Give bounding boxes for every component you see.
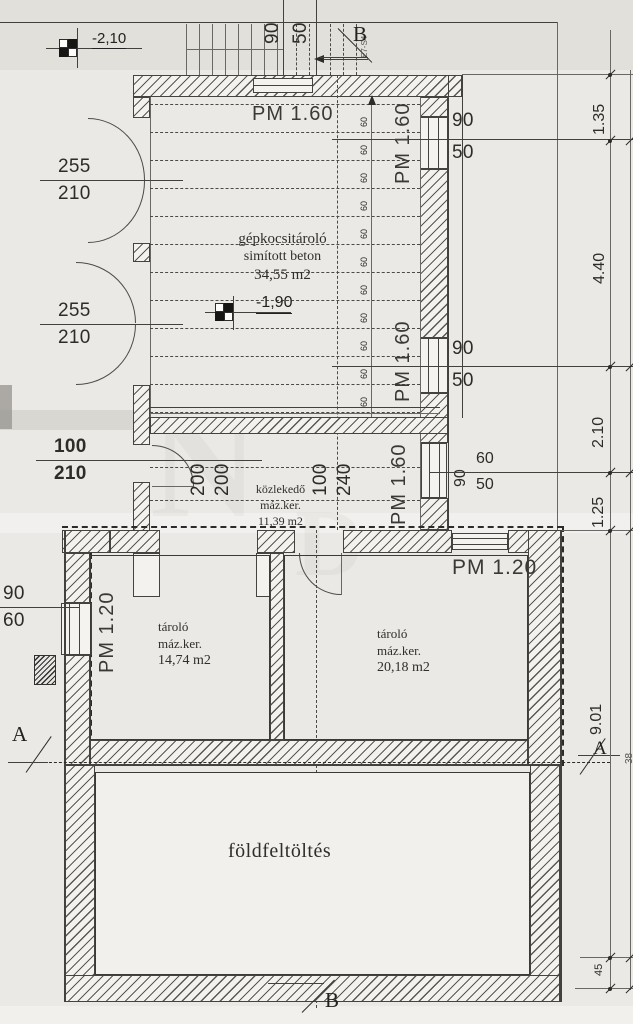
basement-outline-dashed [62, 526, 563, 528]
level-marker-cell [215, 303, 224, 312]
room-right-name: tároló [377, 625, 467, 642]
garage-pm-label: PM 1.60 [252, 103, 333, 126]
level-value-upper: -2,10 [92, 30, 126, 49]
ramp-contour [150, 160, 420, 161]
chimney-block [34, 655, 56, 685]
ramp-step-label: 60 [359, 109, 369, 127]
room-right-label: tároló máz.ker. 20,18 m2 [377, 625, 467, 676]
level-marker-cell [224, 312, 233, 321]
garage-inner-face-right [420, 97, 421, 530]
ramp-step-label: 60 [359, 389, 369, 407]
dim-ext-line [575, 988, 633, 989]
stair-width-dim: 50 [290, 0, 312, 44]
dim-dot [608, 987, 612, 991]
door2-height: 210 [58, 327, 91, 349]
ramp-step-label: 60 [359, 305, 369, 323]
garage-room-name: gépkocsitároló [210, 230, 355, 248]
dim-value-4-40: 4.40 [591, 226, 609, 284]
basement-pm-right: PM 1.20 [452, 556, 537, 580]
level-value-garage: -1,90 [256, 294, 292, 314]
fill-right-wall [530, 765, 560, 1002]
corridor-name: közlekedő [233, 481, 328, 497]
stair-tread-dashed [343, 24, 344, 75]
ramp-step-label: 60 [359, 333, 369, 351]
garage-right-wall [420, 97, 448, 117]
window3-height-a: 60 [476, 450, 494, 468]
ramp-contour [150, 132, 420, 133]
scan-shade-bottom [0, 1006, 633, 1024]
basement-left-wall [65, 655, 90, 765]
scan-shade-band [0, 410, 140, 430]
marker-cross-v [77, 28, 78, 68]
basement-top-wall [62, 530, 110, 553]
basement-window-width: 90 [3, 583, 25, 605]
window3-height-b: 50 [476, 476, 494, 494]
door-leaf-arc [88, 118, 145, 180]
ramp-contour [150, 356, 420, 357]
garage-window-1 [420, 117, 448, 169]
dim-value-45: 45 [593, 948, 605, 976]
outer-wall-line [560, 530, 562, 1002]
room-left-label: tároló máz.ker. 14,74 m2 [158, 618, 238, 669]
ramp-step-label: 60 [359, 361, 369, 379]
window2-height: 50 [452, 370, 474, 392]
door1-dim-line [40, 180, 183, 181]
dim-dot [608, 365, 612, 369]
section-b-top-line [320, 57, 368, 58]
section-a-left-diagonal [26, 736, 52, 773]
fill-top-line [65, 765, 560, 766]
section-b-bottom-label: B [325, 988, 339, 1013]
projection-line [557, 22, 558, 532]
dim-value-38-cut: 38 [624, 740, 633, 764]
garage-room-label: gépkocsitároló simított beton 34,55 m2 [210, 230, 355, 284]
garage-left-wall [133, 97, 150, 118]
ramp-dim-line [371, 100, 372, 418]
door1-width: 255 [58, 156, 91, 178]
door3-width: 100 [54, 436, 87, 458]
basement-top-wall [257, 530, 295, 553]
basement-outline-dashed [562, 526, 564, 766]
section-line-top [316, 0, 317, 75]
garage-left-wall [133, 385, 150, 445]
floorplan-scan: N D -2,10 90 50 E7-S4 B [0, 0, 633, 1024]
scan-shade-left [0, 385, 12, 429]
corridor-opening1-height: 200 [212, 434, 234, 496]
stair-tread-dashed [330, 24, 331, 75]
corridor-pm-label: PM 1.60 [388, 427, 411, 525]
door1-height: 210 [58, 183, 91, 205]
level-marker-cell [59, 48, 68, 57]
door-leaf-arc [88, 181, 145, 243]
dim-dot [608, 956, 612, 960]
dim-dot [608, 73, 612, 77]
garage-step-line [150, 413, 440, 414]
window2-dim-line [332, 366, 633, 367]
basement-middle-wall [270, 553, 284, 740]
dim-dot [608, 139, 612, 143]
dim-ext-line [562, 530, 633, 531]
level-marker-cell [224, 303, 233, 312]
garage-room-area: 34,55 m2 [210, 266, 355, 284]
ramp-step-label: 60 [359, 193, 369, 211]
section-a-left-tick [8, 762, 48, 763]
ramp-contour [150, 328, 420, 329]
basement-pm-left: PM 1.20 [96, 578, 119, 673]
ramp-contour [150, 216, 420, 217]
corridor-opening2-height: 240 [334, 434, 356, 496]
level-marker-cell [68, 39, 77, 48]
basement-top-wall [110, 530, 160, 553]
basement-left-wall [65, 553, 90, 603]
garage-room-finish: simított beton [210, 248, 355, 266]
room-right-area: 20,18 m2 [377, 659, 467, 676]
ramp-contour [150, 188, 420, 189]
dim-dot [608, 529, 612, 533]
dim-value-9-01: 9.01 [588, 675, 606, 735]
ramp-step-label: 60 [359, 165, 369, 183]
stair-landing-line [186, 49, 283, 50]
section-a-left-label: A [12, 722, 27, 747]
window1-width: 90 [452, 110, 474, 132]
stair-width-dim: 90 [262, 0, 284, 44]
room-right-finish: máz.ker. [377, 642, 467, 659]
door2-dim-line [40, 324, 183, 325]
corridor-finish: máz.ker. [233, 497, 328, 513]
window3-width: 90 [452, 445, 470, 487]
stair-arrow-line [322, 59, 368, 60]
ramp-step-label: 60 [359, 277, 369, 295]
ramp-contour [150, 384, 420, 385]
garage-left-wall [133, 243, 150, 262]
basement-window-dim-line [0, 607, 80, 608]
room-left-area: 14,74 m2 [158, 652, 238, 669]
section-b-top-label: B [353, 22, 367, 47]
dim-ext-line [580, 957, 633, 958]
garage-pm-right-lower: PM 1.60 [392, 318, 415, 402]
corridor-room-label: közlekedő máz.ker. 11,39 m2 [233, 481, 328, 529]
dim-value-1-25: 1.25 [590, 474, 608, 528]
section-a-right-label: A [593, 738, 607, 760]
basement-window-height: 60 [3, 610, 25, 632]
garage-pm-right-upper: PM 1.60 [392, 100, 415, 184]
dim-value-1-35: 1.35 [591, 85, 609, 135]
ramp-step-label: 60 [359, 249, 369, 267]
fill-interior [95, 772, 530, 975]
fill-left-wall [65, 765, 95, 1002]
room-left-name: tároló [158, 618, 238, 635]
door3-height: 210 [54, 463, 87, 485]
basement-top-wall [343, 530, 452, 553]
garage-right-wall [420, 169, 448, 338]
garage-inner-face-left [150, 97, 151, 418]
ramp-dim-arrow [368, 95, 376, 105]
marker-cross-v [233, 296, 234, 330]
section-a-line [24, 762, 610, 763]
garage-left-wall [133, 482, 150, 532]
window1-height: 50 [452, 142, 474, 164]
garage-step-line [150, 407, 440, 408]
level-marker-cell [68, 48, 77, 57]
corridor-opening1-width: 200 [188, 434, 210, 496]
window2-width: 90 [452, 338, 474, 360]
level-marker-cell [215, 312, 224, 321]
level-marker-cell [59, 39, 68, 48]
garage-right-outer-line [448, 75, 449, 530]
fill-label: földfeltöltés [228, 840, 331, 863]
door2-width: 255 [58, 300, 91, 322]
garage-top-opening-beam [253, 78, 313, 93]
room-left-finish: máz.ker. [158, 635, 238, 652]
basement-top-window [452, 533, 508, 550]
dim-line-main [610, 30, 611, 990]
ramp-step-label: 60 [359, 221, 369, 239]
fill-bottom-wall [65, 975, 560, 1002]
dim-dot [608, 471, 612, 475]
section-b-bottom-line [268, 983, 324, 984]
dim-value-2-10: 2.10 [590, 390, 608, 448]
window1-dim-line [332, 139, 633, 140]
basement-left-window [61, 603, 92, 655]
garage-window-3 [421, 443, 447, 498]
